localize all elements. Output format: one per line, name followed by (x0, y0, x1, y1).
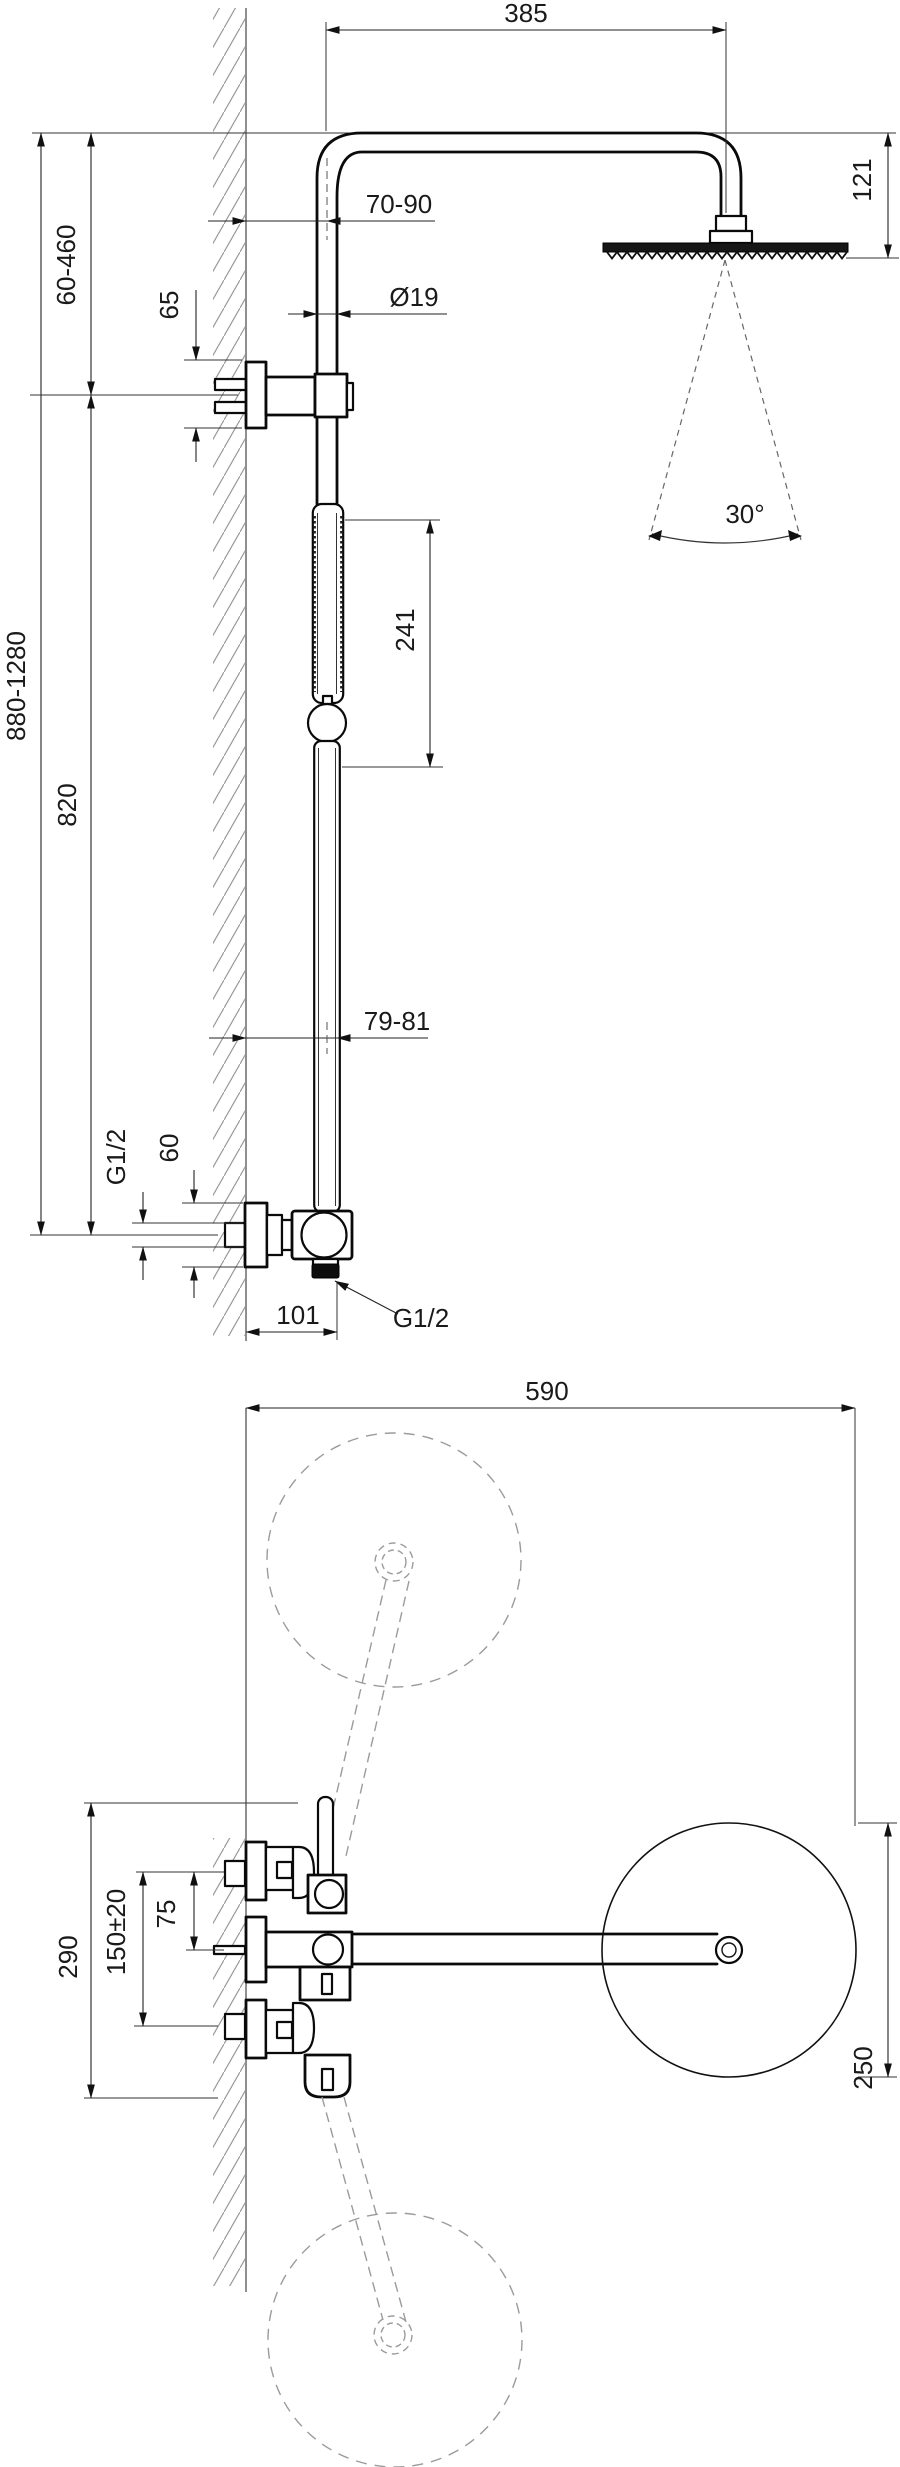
dim-60-mixer-label: 60 (154, 1134, 184, 1163)
mixer-knob-circle (302, 1213, 347, 1258)
slider-knob (308, 704, 346, 742)
outlet-nut (312, 1264, 339, 1278)
head-plate (603, 243, 848, 252)
bracket-pin-bottom (215, 402, 246, 413)
bracket-arm (266, 377, 315, 415)
plan-pin-upper (225, 1861, 245, 1886)
dim-75-label: 75 (151, 1900, 181, 1929)
head-connector-nut (716, 216, 746, 231)
outlet-thread-callout: G1/2 (335, 1281, 449, 1333)
plan-knob-upper-notch (277, 1862, 292, 1878)
plan-shower-arm-head (352, 1823, 856, 2077)
dimension-121: 121 (846, 133, 899, 258)
dim-241-label: 241 (390, 608, 420, 651)
slide-bar (314, 741, 340, 1212)
pipe-inner-line (337, 152, 721, 374)
front-view: 30° (1, 0, 899, 1341)
dimension-241: 241 (342, 520, 443, 767)
dim-290-label: 290 (53, 1935, 83, 1978)
spray-line-left (649, 260, 725, 540)
dimension-diameter-19: Ø19 (288, 282, 447, 314)
bracket-pin-top (215, 379, 246, 390)
angle-arrow-left (648, 530, 662, 541)
plan-escutcheon-lower (246, 2000, 266, 2058)
wall-hatch-front (213, 8, 246, 1336)
hand-shower (308, 504, 346, 742)
bracket-clamp-cap (347, 383, 353, 410)
plan-holder-cup-slot (322, 2069, 333, 2090)
dim-101-label: 101 (276, 1300, 319, 1330)
hand-shower-down-knob-inner (381, 2323, 405, 2347)
overhead-shower-head (603, 216, 848, 259)
dim-60-460-label: 60-460 (51, 225, 81, 306)
dimension-880-1280: 880-1280 (1, 133, 41, 1235)
dim-65-label: 65 (154, 291, 184, 320)
dim-250-label: 250 (848, 2046, 878, 2089)
dim-70-90-label: 70-90 (366, 189, 433, 219)
wall-front (213, 8, 246, 1341)
plan-pin-lower (225, 2014, 245, 2039)
plan-knob-lower-dome (293, 2003, 314, 2053)
dim-590-label: 590 (525, 1376, 568, 1406)
mixer-escutcheon-front (245, 1203, 267, 1267)
hand-shower-up-knob-inner (382, 1550, 406, 1574)
head-connector-cone (710, 231, 752, 243)
plan-hand-shower-up (267, 1433, 521, 1856)
mixer-valve-front (225, 1203, 352, 1278)
dimension-385: 385 (326, 0, 726, 213)
plan-escutcheon-upper (246, 1842, 266, 1900)
dim-150-label: 150±20 (101, 1889, 131, 1976)
technical-drawing-page: 30° (0, 0, 900, 2467)
dimension-150-20: 150±20 (101, 1872, 218, 2026)
mixer-step-2 (282, 1220, 292, 1250)
angle-arrow-right (788, 530, 802, 541)
hand-shower-up-knob-outer (375, 1543, 413, 1581)
angle-arc (652, 534, 798, 543)
dim-g12-outlet-label: G1/2 (393, 1303, 449, 1333)
plan-block-lower-slot (322, 1974, 332, 1994)
supply-pin-front (225, 1223, 245, 1247)
dim-385-label: 385 (504, 0, 547, 28)
wall-plan (213, 1408, 246, 2292)
plan-knob-lower-notch (277, 2022, 292, 2038)
plan-view: 590 (53, 1376, 897, 2467)
hand-shower-up-handle-right (346, 1581, 409, 1856)
plan-escutcheon-middle (246, 1917, 266, 1982)
mixer-step-1 (267, 1215, 282, 1255)
dimension-820: 820 (52, 395, 91, 1235)
dimension-590: 590 (246, 1376, 855, 1826)
dim-820-label: 820 (52, 783, 82, 826)
spray-line-right (725, 260, 801, 540)
plan-arm-joint-outer (716, 1937, 742, 1963)
wall-hatch-plan (213, 1838, 246, 2286)
dimension-101: 101 (246, 1283, 337, 1340)
bracket-clamp (315, 374, 347, 417)
hand-shower-down-circle (268, 2213, 522, 2467)
holder-nub (323, 696, 332, 704)
dimension-60-460: 60-460 (51, 133, 91, 395)
plan-hand-shower-down (268, 2097, 522, 2467)
plan-lever-handle (318, 1797, 333, 1885)
spray-angle-label: 30° (725, 499, 764, 529)
dim-121-label: 121 (847, 158, 877, 201)
plan-holder-circle (315, 1880, 343, 1908)
plan-column-circle (313, 1935, 343, 1965)
spray-cone: 30° (648, 260, 802, 543)
bracket-escutcheon (246, 362, 266, 428)
drawing-canvas: 30° (0, 0, 900, 2467)
dimension-75: 75 (136, 1872, 224, 1950)
dim-19-label: Ø19 (389, 282, 438, 312)
dim-79-81-label: 79-81 (364, 1006, 431, 1036)
dim-g12-supply-label: G1/2 (101, 1129, 131, 1185)
dim-880-1280-label: 880-1280 (1, 631, 31, 741)
head-nozzle-teeth (607, 252, 847, 259)
